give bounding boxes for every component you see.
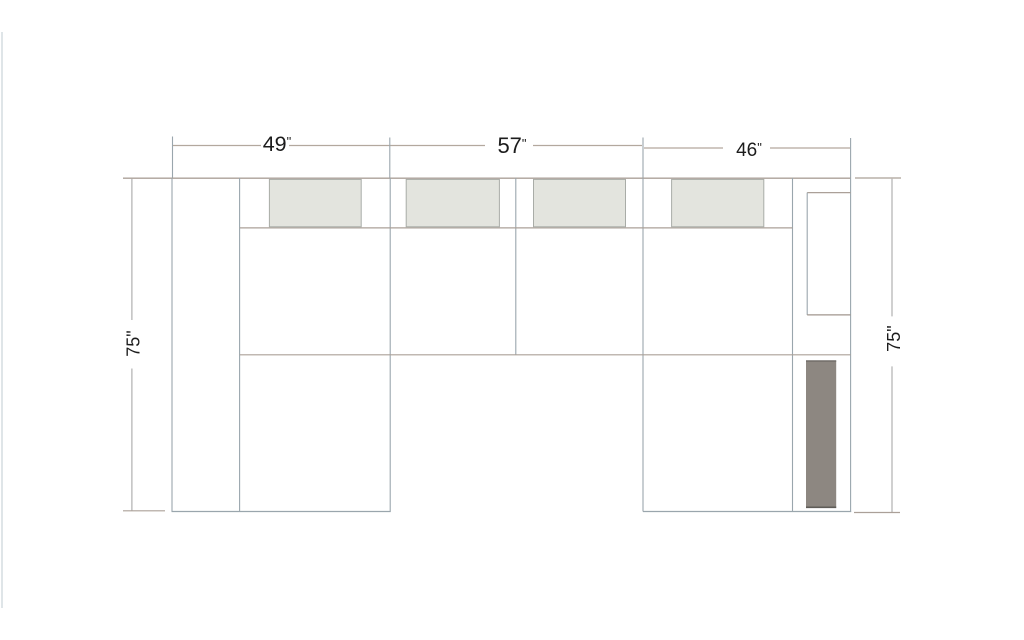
svg-text:75": 75" (884, 325, 904, 351)
svg-text:75": 75" (123, 330, 143, 356)
